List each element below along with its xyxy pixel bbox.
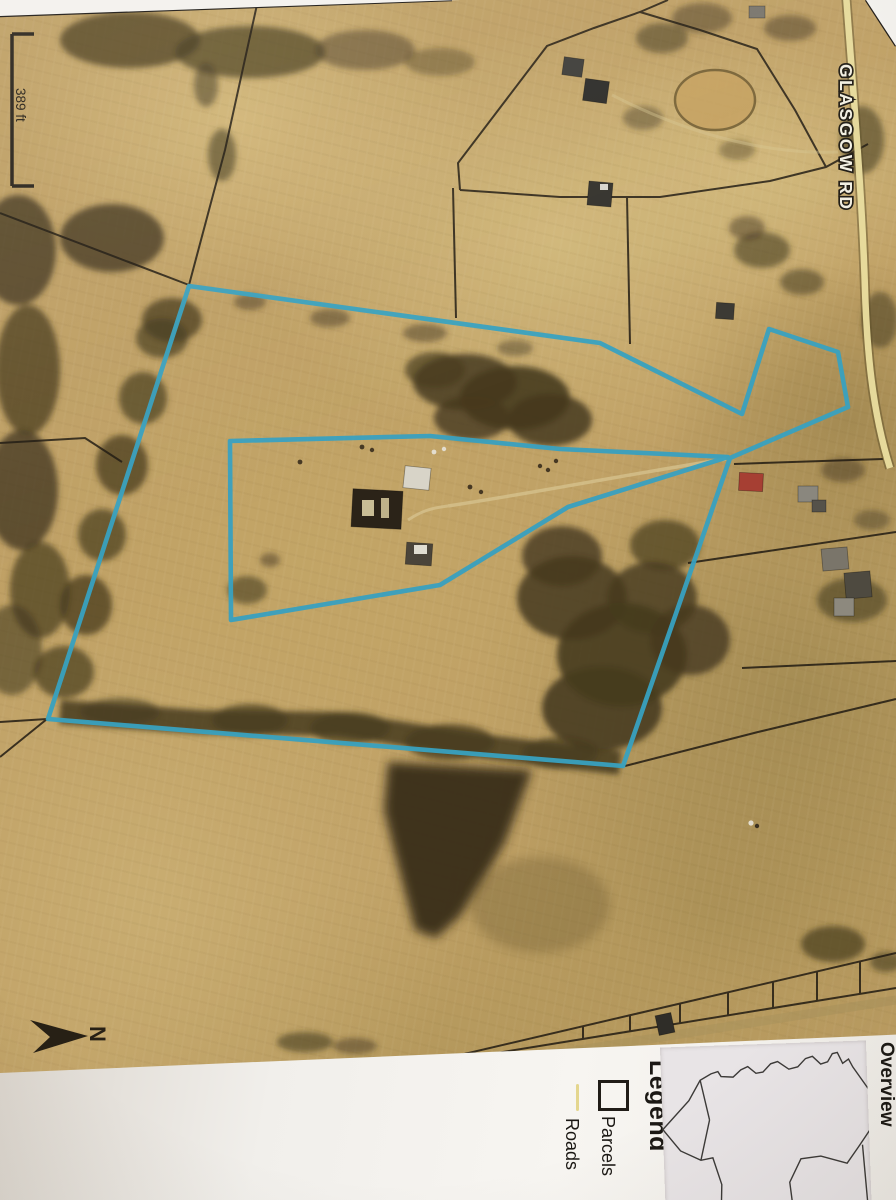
map-overlay: 389 ft N GLASGOW RD bbox=[0, 0, 896, 1200]
glasgow-rd-label: GLASGOW RD bbox=[836, 64, 856, 212]
overview-inset-map bbox=[660, 1040, 872, 1200]
north-arrow-icon bbox=[30, 1020, 88, 1053]
north-arrow: N bbox=[30, 1020, 110, 1053]
inset-county-lines bbox=[660, 1051, 872, 1200]
overview-inset-title: Overview bbox=[877, 1042, 896, 1127]
driveway-track bbox=[408, 95, 838, 520]
scale-bar-label: 389 ft bbox=[13, 88, 28, 122]
pond-circle bbox=[675, 70, 755, 130]
legend-item-parcels: Parcels bbox=[599, 1116, 617, 1176]
printed-parcel-map-photo: 389 ft N GLASGOW RD Legend Parcels Roads bbox=[0, 0, 896, 1200]
roads-symbol bbox=[576, 1084, 579, 1111]
parcels-symbol bbox=[598, 1080, 629, 1111]
legend-item-roads: Roads bbox=[563, 1118, 581, 1170]
north-label: N bbox=[85, 1026, 110, 1042]
